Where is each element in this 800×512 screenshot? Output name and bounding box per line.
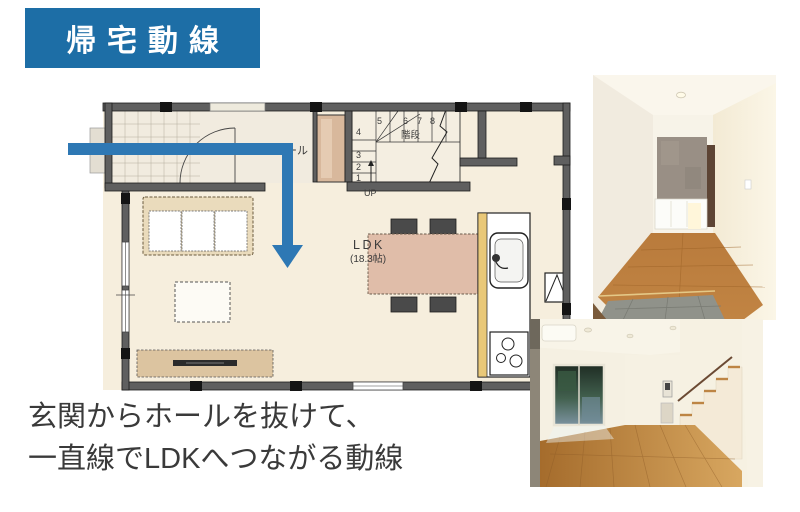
photo2-downlight-3 xyxy=(670,326,676,330)
stair-number-1: 1 xyxy=(356,173,361,183)
closet-shade xyxy=(321,119,332,178)
stair-number-5: 5 xyxy=(377,116,382,126)
ldk-area-label: (18.3帖) xyxy=(350,252,386,265)
kitchen xyxy=(478,213,530,377)
stairs-label: 階段 xyxy=(401,129,421,141)
title-badge-label: 帰宅動線 xyxy=(55,16,230,60)
photo1-doorway xyxy=(707,145,715,227)
up-label: UP xyxy=(364,188,377,198)
photo2-downlight-1 xyxy=(585,328,592,332)
photo1-shoe-cabinet xyxy=(655,199,707,229)
caption: 玄関からホールを抜けて、 一直線でLDKへつながる動線 xyxy=(28,396,403,480)
ldk-label: LDK xyxy=(353,238,385,252)
photo1-switch xyxy=(745,180,751,189)
photo2-window xyxy=(554,365,604,425)
photo2-downlight-2 xyxy=(627,334,633,338)
ldk-photo xyxy=(530,319,763,487)
photo1-downlight xyxy=(677,92,686,98)
stair-number-3: 3 xyxy=(356,150,361,160)
stair-number-2: 2 xyxy=(356,162,361,172)
stair-number-6: 6 xyxy=(403,116,408,126)
title-badge: 帰宅動線 xyxy=(25,8,260,68)
faucet xyxy=(492,254,500,262)
caption-line-1: 玄関からホールを抜けて、 xyxy=(28,396,403,438)
stair-number-8: 8 xyxy=(430,116,435,126)
stair-number-4: 4 xyxy=(356,127,361,137)
caption-line-2: 一直線でLDKへつながる動線 xyxy=(28,438,403,480)
photo2-air-conditioner xyxy=(542,325,576,341)
entrance-photo-svg xyxy=(593,75,776,320)
ldk-photo-svg xyxy=(530,319,763,487)
stair-number-7: 7 xyxy=(417,116,422,126)
floorplan-svg: 4 3 2 1 5 6 7 8 階段 UP LDK (18.3帖) ホール xyxy=(60,98,580,393)
floorplan: 4 3 2 1 5 6 7 8 階段 UP LDK (18.3帖) ホール xyxy=(60,98,580,393)
tv-board xyxy=(137,350,273,377)
entrance-photo xyxy=(593,75,776,320)
coffee-table xyxy=(175,282,230,322)
sofa xyxy=(143,197,253,255)
